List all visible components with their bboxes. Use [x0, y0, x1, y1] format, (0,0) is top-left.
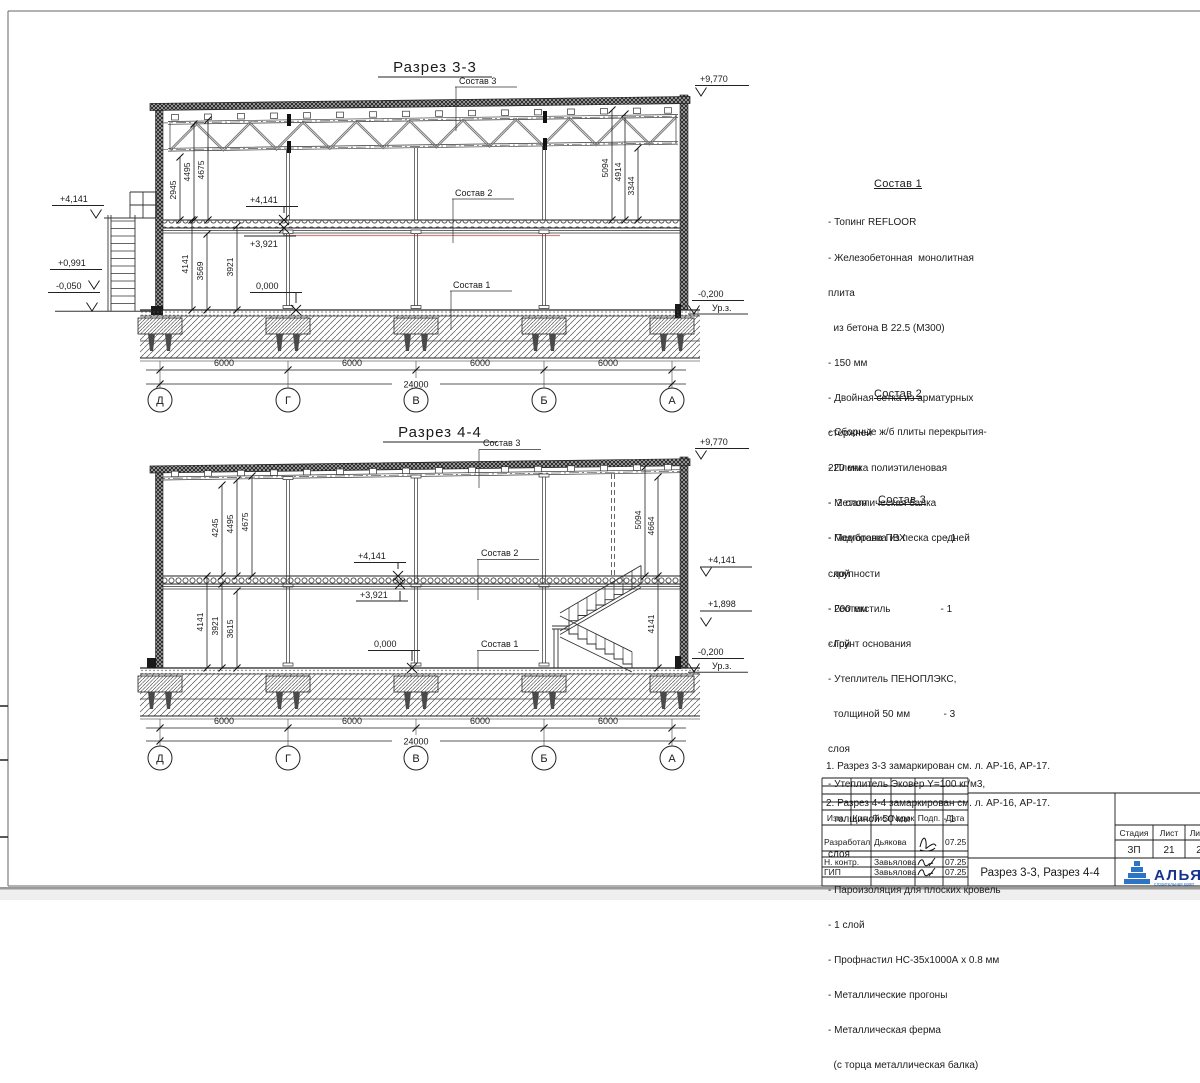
company-logo: АЛЬЯН строительная комп: [1124, 861, 1200, 887]
elevation-label: +4,141: [250, 195, 278, 205]
dim-label: 6000: [214, 358, 234, 368]
note-line: - Металлические прогоны: [828, 990, 1001, 1002]
external-stair: [104, 192, 156, 311]
slab-3-3: [163, 220, 680, 236]
note-line: - Железобетонная монолитная: [828, 253, 974, 265]
axis-bubbles-33: Д Г В Б А: [148, 388, 684, 412]
elevation-label: +3,921: [250, 239, 278, 249]
axis-bubbles-44: Д Г В Б А: [148, 746, 684, 770]
dim-label: 4495: [225, 514, 235, 533]
note-line: (с торца металлическая балка): [828, 1060, 1001, 1072]
dim-label: 4664: [646, 516, 656, 535]
elevation-label: -0,200: [698, 647, 724, 657]
note-line: из бетона В 22.5 (М300): [828, 323, 974, 335]
dim-label: 3569: [195, 261, 205, 280]
dim-label: 4141: [195, 612, 205, 631]
dim-label: 3921: [225, 257, 235, 276]
note-line: - Пароизоляция для плоских кровель: [828, 885, 1001, 897]
dim-label: 6000: [470, 716, 490, 726]
dim-label: 6000: [342, 716, 362, 726]
axis-label: А: [668, 753, 676, 765]
elevation-label: +4,141: [708, 555, 736, 565]
ground-floor-3-3: [55, 310, 748, 316]
drawing-sheet: { "sheet": { "doc_title": "Разрез 3-3, Р…: [0, 0, 1200, 900]
leader-sostav1-44: Состав 1: [477, 639, 539, 671]
dim-label: 4141: [180, 254, 190, 273]
dim-label: 3615: [225, 619, 235, 638]
dim-label: 4495: [182, 162, 192, 181]
elevation-label: +1,898: [708, 599, 736, 609]
elevation-label: +9,770: [700, 74, 728, 84]
tb-stage-label: Стадия: [1120, 828, 1149, 838]
tb-sheets-value: 2: [1196, 845, 1200, 856]
axis-label: В: [412, 395, 419, 407]
columns-4-4: [283, 474, 615, 666]
dim-label: 24000: [403, 737, 428, 747]
elevation-label: 0,000: [374, 639, 397, 649]
axis-label: Д: [156, 753, 164, 765]
leader-label: Состав 2: [481, 548, 518, 558]
columns-lower-3-3: [283, 230, 549, 309]
elevation-label: +4,141: [60, 194, 88, 204]
note-line: плита: [828, 288, 974, 300]
section-3-3: Разрез 3-3: [48, 59, 749, 412]
dim-label: 6000: [214, 716, 234, 726]
tb-sheet-label: Лист: [1160, 828, 1179, 838]
note-line: - Сборные ж/б плиты перекрытия-: [828, 427, 987, 439]
dim-label: 6000: [598, 358, 618, 368]
axis-label: Б: [540, 395, 547, 407]
vdims-left-upper-44: 4245 4495 4675: [210, 473, 256, 580]
vdims-left-lower-44: 4141 3921 3615: [195, 573, 241, 672]
axis-label: Г: [285, 753, 291, 765]
note-line: - Металлическая ферма: [828, 1025, 1001, 1037]
dim-label: 4675: [196, 160, 206, 179]
dims-bottom-33: 6000 6000 6000 6000 24000: [146, 358, 686, 390]
note-line: - Профнастил НС-35х1000А х 0.8 мм: [828, 955, 1001, 967]
elevation-label: +3,921: [360, 590, 388, 600]
note-line: слоя: [828, 849, 1001, 861]
section-4-4: Разрез 4-4: [138, 424, 752, 770]
section-4-4-title: Разрез 4-4: [398, 424, 482, 441]
elevation-right-slab-44: +4,141: [700, 555, 752, 576]
note-line: - 150 мм: [828, 358, 974, 370]
dim-label: 6000: [342, 358, 362, 368]
elevation-ground-44: -0,200 Ур.з.: [689, 647, 745, 672]
dim-label: 3921: [210, 616, 220, 635]
note-line: слой: [828, 639, 1001, 651]
note-line: толщиной 50 мм - 3: [828, 709, 1001, 721]
notes-sostav1-heading: Состав 1: [828, 178, 968, 190]
elevation-label: +0,991: [58, 258, 86, 268]
leader-label: Состав 2: [455, 188, 492, 198]
axis-label: Д: [156, 395, 164, 407]
walls-3-3: [151, 95, 688, 318]
dim-label: 4914: [613, 162, 623, 181]
dim-label: 4675: [240, 512, 250, 531]
vdims-left-lower-33: 4141 3569 3921: [180, 217, 241, 314]
leader-sostav2-33: Состав 2: [452, 188, 514, 243]
axis-label: В: [412, 753, 419, 765]
remark-line: 2. Разрез 4-4 замаркирован см. л. АР-16,…: [826, 798, 1050, 810]
dim-label: 6000: [598, 716, 618, 726]
vdims-right-33: 5094 4914 3344: [600, 107, 642, 224]
note-line: - Мембрана ПВХ - 1: [828, 533, 1001, 545]
notes-sostav2-heading: Состав 2: [828, 388, 968, 400]
note-line: - Геотекстиль - 1: [828, 604, 1001, 616]
dims-bottom-44: 6000 6000 6000 6000 24000: [146, 716, 686, 747]
elevation-left-top-33: +4,141: [52, 194, 104, 218]
note-line: - Топинг REFLOOR: [828, 217, 974, 229]
elevation-right-stair-44: +1,898: [700, 599, 752, 626]
dim-label: 4141: [646, 614, 656, 633]
roof-3-3: [150, 97, 690, 111]
slab-4-4: [163, 576, 680, 589]
sheet-remarks: 1. Разрез 3-3 замаркирован см. л. АР-16,…: [826, 736, 1050, 823]
elevation-roof-44: +9,770: [695, 437, 749, 459]
leader-sostav2-44: Состав 2: [477, 548, 539, 600]
elevation-label: Ур.з.: [712, 303, 731, 313]
elevation-label: -0,050: [56, 281, 82, 291]
axis-label: А: [668, 395, 676, 407]
tb-sheet-value: 21: [1163, 845, 1175, 856]
elevation-label: Ур.з.: [712, 661, 731, 671]
elevation-label: -0,200: [698, 289, 724, 299]
dim-label: 5094: [600, 158, 610, 177]
tb-stage-value: ЗП: [1127, 845, 1140, 856]
note-line: - Утеплитель ПЕНОПЛЭКС,: [828, 674, 1001, 686]
dim-label: 2945: [168, 180, 178, 199]
dim-label: 4245: [210, 518, 220, 537]
dim-label: 5094: [633, 510, 643, 529]
tb-sheets-label: Лис: [1190, 828, 1200, 838]
section-3-3-title: Разрез 3-3: [393, 59, 477, 76]
leader-label: Состав 1: [453, 280, 490, 290]
leader-label: Состав 3: [483, 438, 520, 448]
axis-label: Б: [540, 753, 547, 765]
leader-label: Состав 3: [459, 76, 496, 86]
elevation-ground-33: -0,200 Ур.з.: [689, 289, 745, 314]
leader-label: Состав 1: [481, 639, 518, 649]
elevation-label: +4,141: [358, 551, 386, 561]
note-line: слой: [828, 569, 1001, 581]
elevation-label: +9,770: [700, 437, 728, 447]
axis-label: Г: [285, 395, 291, 407]
remark-line: 1. Разрез 3-3 замаркирован см. л. АР-16,…: [826, 761, 1050, 773]
note-line: - 1 слой: [828, 920, 1001, 932]
columns-upper-3-3: [287, 146, 546, 220]
dim-label: 3344: [626, 176, 636, 195]
notes-sostav3-heading: Состав 3: [832, 494, 972, 506]
note-line: 220 мм: [828, 463, 987, 475]
logo-subtext: строительная комп: [1154, 882, 1194, 887]
elevation-label: 0,000: [256, 281, 279, 291]
elevation-roof-33: +9,770: [695, 74, 749, 96]
dim-label: 6000: [470, 358, 490, 368]
